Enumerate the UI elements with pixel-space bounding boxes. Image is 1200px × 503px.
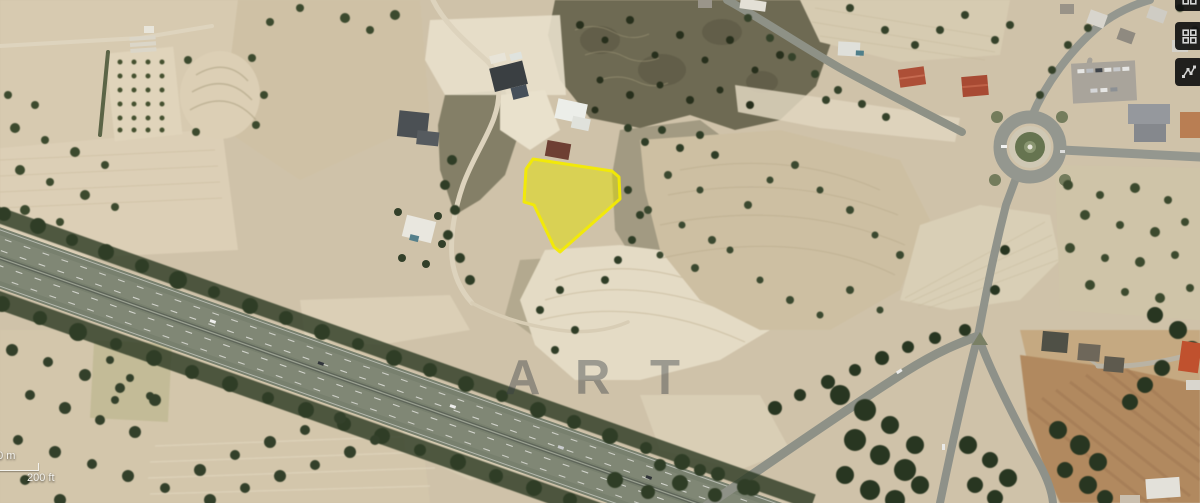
svg-text:T: T [650,351,680,405]
map-control-button-tiles[interactable] [1175,22,1200,50]
scale-bar [0,463,39,471]
map-control-button-measure[interactable] [1175,58,1200,86]
tiles-icon [1182,0,1197,5]
tiles-icon [1182,29,1197,44]
measure-path-icon [1181,64,1197,80]
map-control-button-top[interactable] [1175,0,1200,11]
svg-text:A: A [505,351,540,405]
scale-metric-label: 50 m [0,450,55,462]
watermark: A R T [505,351,680,405]
scale-imperial-label: 200 ft [27,472,55,484]
svg-text:R: R [575,351,610,405]
map-viewport[interactable]: A R T 50 m 200 ft [0,0,1200,503]
satellite-imagery[interactable]: A R T [0,0,1200,503]
map-scale-control: 50 m 200 ft [0,450,55,484]
